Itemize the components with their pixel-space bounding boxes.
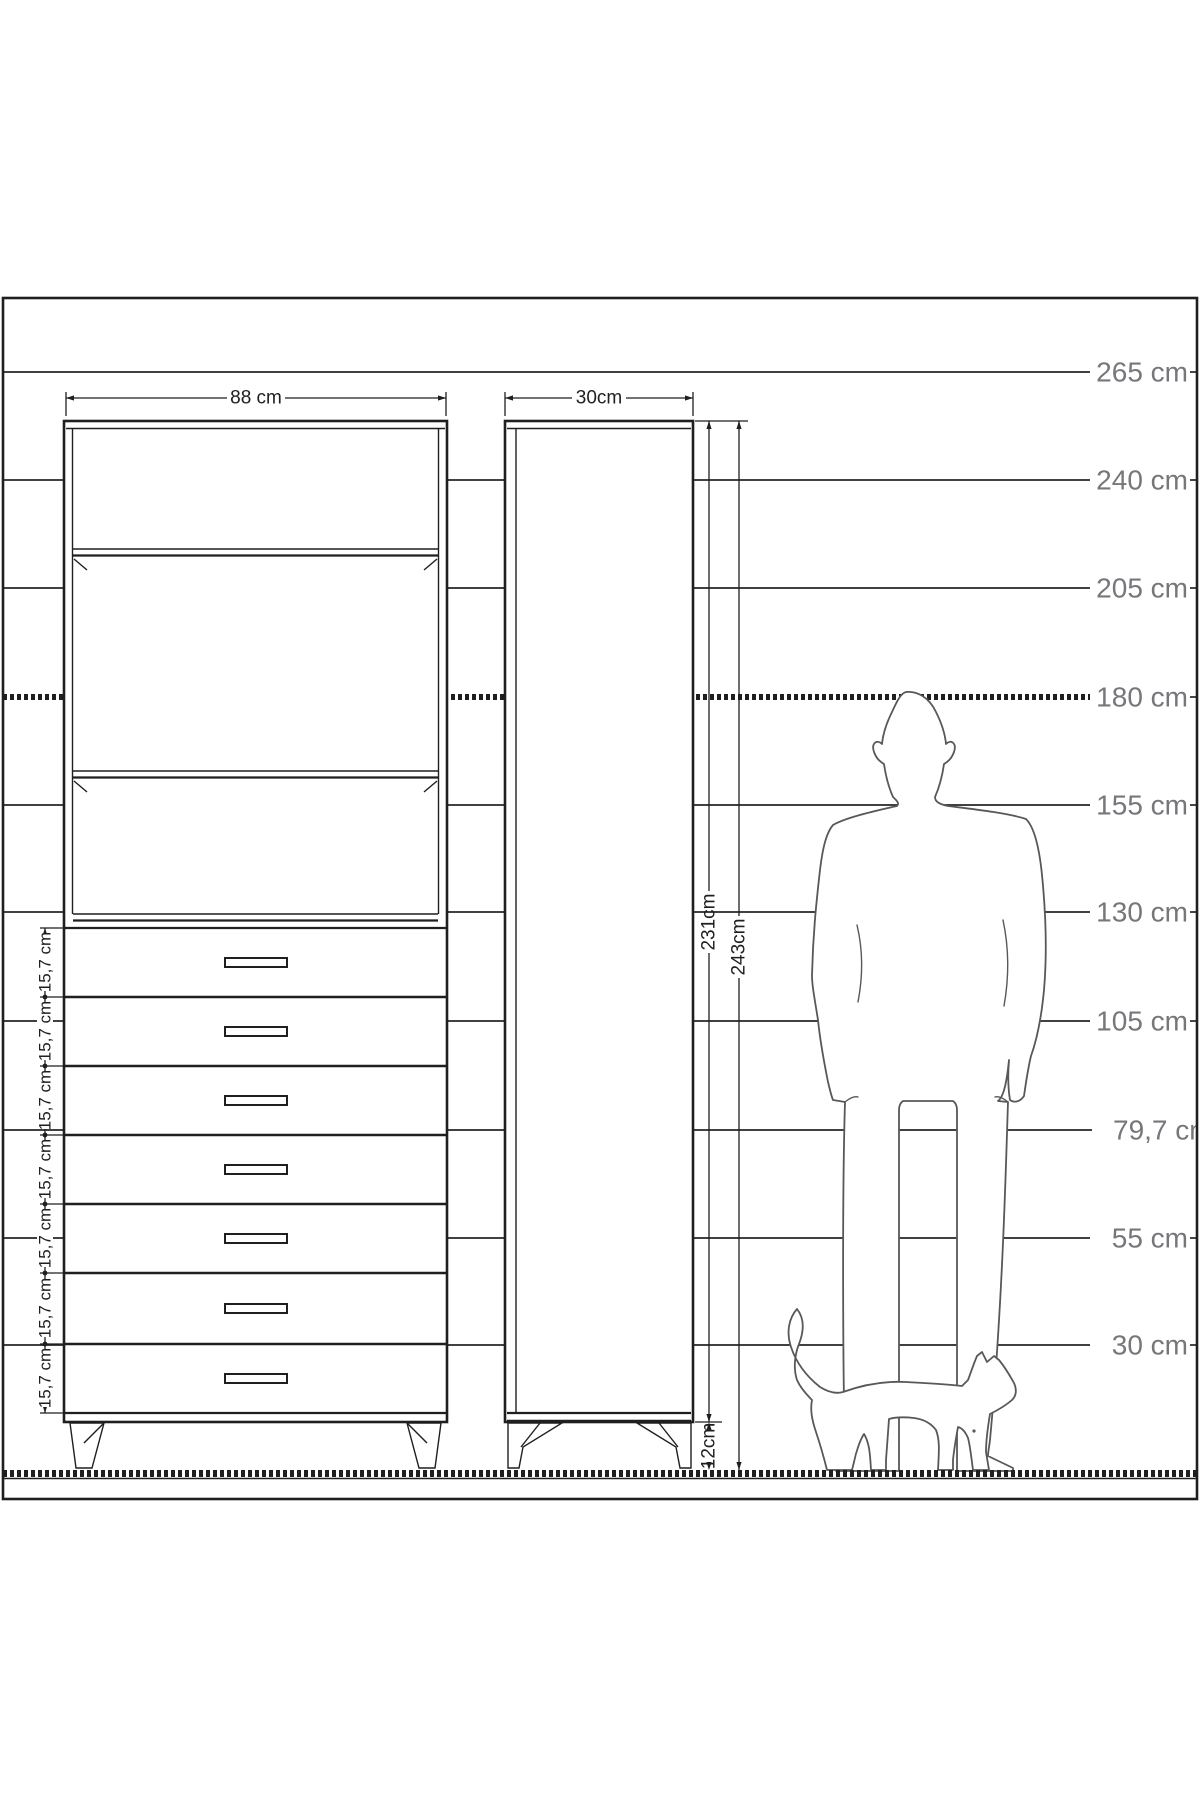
height-dimensions: 231cm 243cm 12cm: [695, 421, 750, 1470]
scale-label-79: 79,7 cm: [1113, 1115, 1200, 1146]
man-silhouette: [812, 692, 1046, 1471]
side-depth-dimension: 30cm: [505, 388, 693, 417]
cat-marking-dot: [972, 1429, 975, 1432]
leg-height-label: 12cm: [699, 1423, 720, 1469]
cabinet-height-label: 231cm: [699, 893, 720, 950]
drawer-height-label: 15,7 cm: [36, 1001, 55, 1061]
drawer-height-dimensions: 15,7 cm 15,7 cm 15,7 cm 15,7 cm 15,7 cm …: [36, 928, 65, 1413]
scale-label-205: 205 cm: [1096, 573, 1188, 604]
height-scale-labels: 265 cm 240 cm 205 cm 180 cm 155 cm 130 c…: [1096, 357, 1200, 1361]
scale-label-180: 180 cm: [1096, 682, 1188, 713]
scale-label-265: 265 cm: [1096, 357, 1188, 388]
drawer-height-label: 15,7 cm: [36, 1139, 55, 1199]
scale-label-240: 240 cm: [1096, 465, 1188, 496]
drawer-height-label: 15,7 cm: [36, 1348, 55, 1408]
front-view-cabinet: [64, 421, 447, 1468]
scale-label-105: 105 cm: [1096, 1006, 1188, 1037]
drawer-height-label: 15,7 cm: [36, 1208, 55, 1268]
side-depth-label: 30cm: [576, 388, 622, 409]
side-view-legs: [508, 1423, 691, 1468]
scale-label-55: 55 cm: [1112, 1223, 1188, 1254]
diagram-canvas: 88 cm 30cm: [0, 0, 1200, 1800]
drawer-height-label: 15,7 cm: [36, 1070, 55, 1130]
total-height-label: 243cm: [729, 918, 750, 975]
scale-label-30: 30 cm: [1112, 1330, 1188, 1361]
side-view-cabinet: [505, 421, 693, 1468]
front-width-label: 88 cm: [230, 388, 282, 409]
drawer-height-label: 15,7 cm: [36, 1278, 55, 1338]
furniture-dimension-diagram: 88 cm 30cm: [0, 0, 1200, 1800]
scale-label-155: 155 cm: [1096, 790, 1188, 821]
drawer-height-label: 15,7 cm: [36, 932, 55, 992]
floor-line: [3, 1474, 1197, 1479]
scale-label-130: 130 cm: [1096, 897, 1188, 928]
front-view-legs: [70, 1423, 441, 1468]
front-width-dimension: 88 cm: [66, 388, 446, 417]
